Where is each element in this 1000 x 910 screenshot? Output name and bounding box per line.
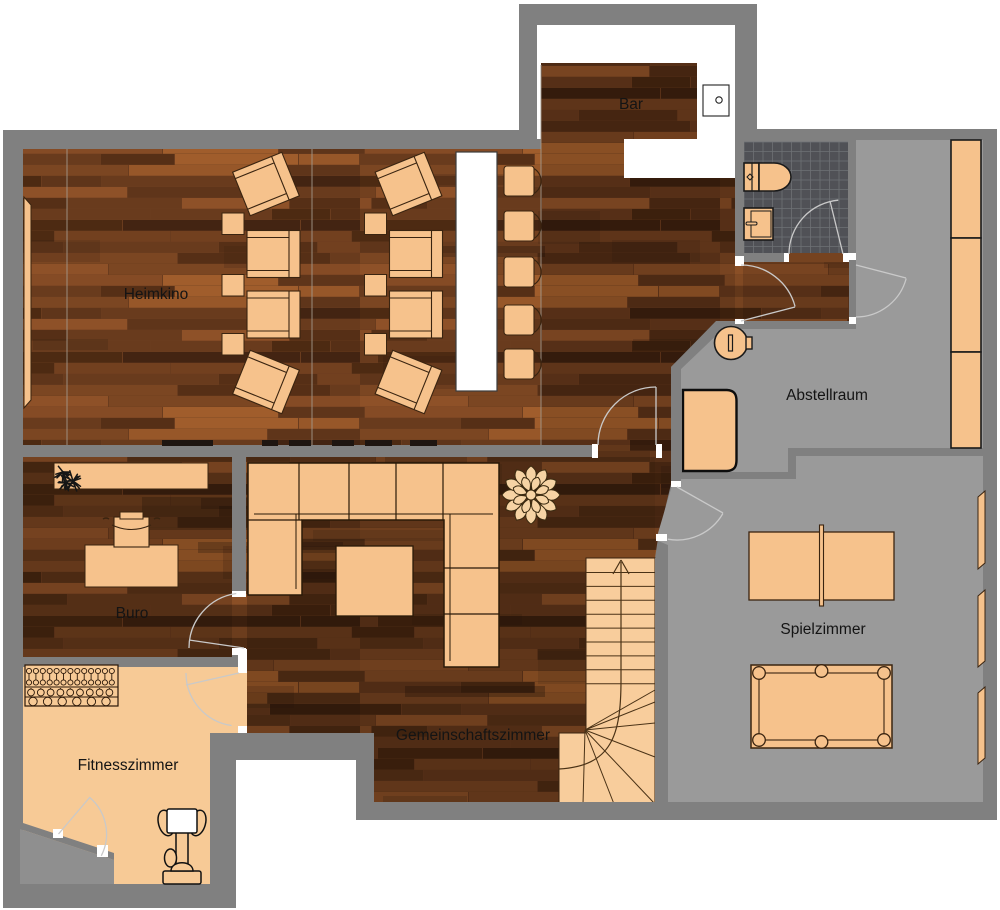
svg-text:Fitnesszimmer: Fitnesszimmer — [78, 757, 179, 774]
svg-text:Abstellraum: Abstellraum — [786, 387, 868, 404]
svg-text:Heimkino: Heimkino — [124, 286, 189, 303]
svg-text:Gemeinschaftszimmer: Gemeinschaftszimmer — [396, 727, 550, 744]
svg-text:Buro: Buro — [116, 605, 149, 622]
svg-text:Spielzimmer: Spielzimmer — [780, 621, 865, 638]
svg-text:Bar: Bar — [619, 96, 643, 113]
